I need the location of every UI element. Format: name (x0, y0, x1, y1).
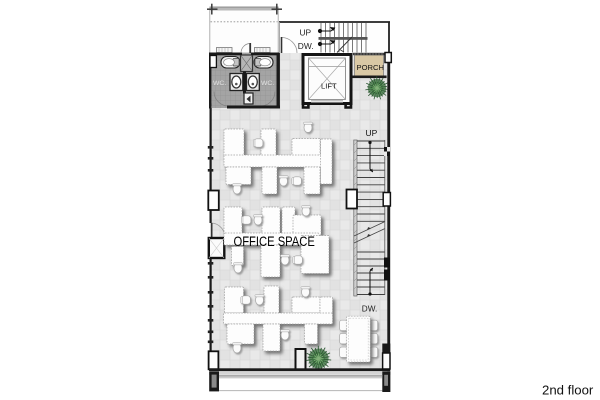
svg-text:WC.: WC. (261, 80, 274, 87)
svg-text:DW.: DW. (298, 41, 314, 51)
svg-text:LIFT: LIFT (321, 82, 337, 91)
svg-text:DW.: DW. (362, 305, 377, 314)
svg-text:WC.: WC. (213, 80, 226, 87)
svg-text:UP: UP (300, 28, 312, 38)
svg-text:PORCH: PORCH (357, 63, 384, 72)
svg-text:2nd floor: 2nd floor (542, 383, 594, 398)
svg-text:OFFICE SPACE: OFFICE SPACE (234, 233, 315, 250)
svg-text:UP: UP (366, 128, 378, 138)
